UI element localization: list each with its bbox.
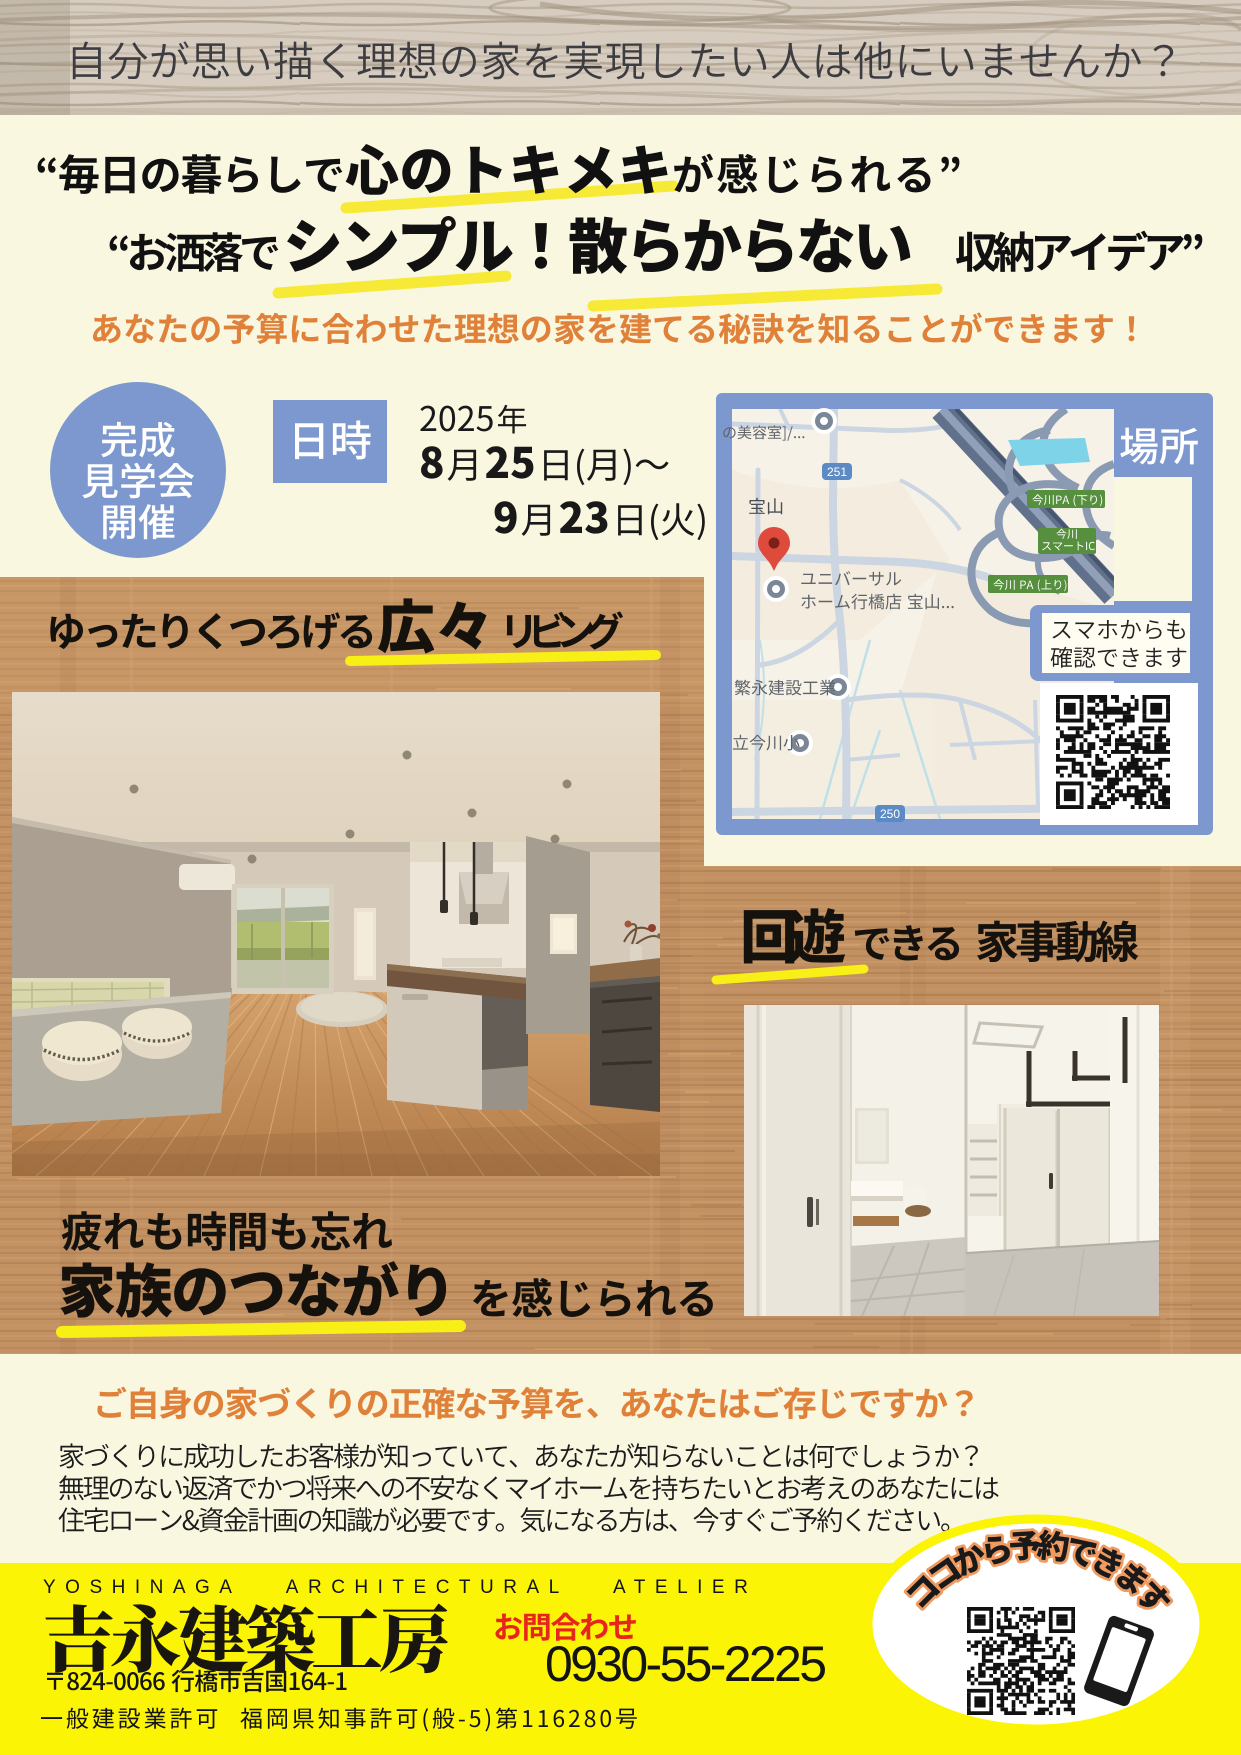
svg-text:250: 250 — [880, 807, 900, 821]
svg-text:YOSHINAGA ARCHITECTURAL AT: YOSHINAGA ARCHITECTURAL ATELIER — [43, 1577, 757, 1598]
svg-text:251: 251 — [827, 465, 847, 479]
svg-text:0930-55-2225: 0930-55-2225 — [545, 1636, 827, 1692]
